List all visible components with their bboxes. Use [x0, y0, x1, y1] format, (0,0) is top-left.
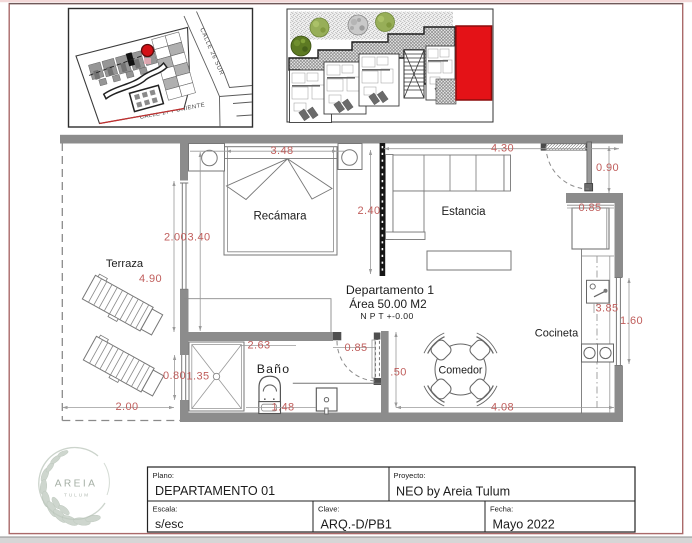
svg-text:Área 50.00 M2: Área 50.00 M2: [349, 297, 426, 311]
svg-text:2.63: 2.63: [247, 340, 270, 352]
svg-text:TULUM: TULUM: [64, 493, 90, 499]
svg-text:Proyecto:: Proyecto:: [394, 471, 426, 480]
svg-text:3.48: 3.48: [270, 145, 293, 157]
svg-text:Cocineta: Cocineta: [535, 328, 579, 340]
svg-text:DEPARTAMENTO 01: DEPARTAMENTO 01: [155, 484, 275, 498]
svg-text:3.40: 3.40: [187, 232, 210, 244]
svg-text:s/esc: s/esc: [155, 517, 183, 531]
svg-text:4.30: 4.30: [491, 143, 514, 155]
svg-text:Plano:: Plano:: [153, 471, 175, 480]
svg-text:.50: .50: [390, 366, 407, 378]
svg-text:4.90: 4.90: [139, 273, 162, 285]
svg-text:1.60: 1.60: [620, 315, 643, 327]
svg-text:Terraza: Terraza: [106, 258, 144, 270]
svg-text:Clave:: Clave:: [318, 504, 340, 513]
svg-text:0.90: 0.90: [596, 162, 619, 174]
svg-text:Departamento 1: Departamento 1: [346, 283, 434, 297]
svg-text:2.00: 2.00: [164, 232, 187, 244]
svg-text:Mayo 2022: Mayo 2022: [493, 517, 555, 531]
svg-text:Recámara: Recámara: [253, 211, 307, 223]
svg-text:3.85: 3.85: [595, 303, 618, 315]
svg-text:N P T +-0.00: N P T +-0.00: [360, 311, 413, 321]
svg-text:ARQ.-D/PB1: ARQ.-D/PB1: [321, 517, 392, 531]
svg-text:AREIA: AREIA: [55, 479, 98, 490]
svg-text:4.08: 4.08: [491, 401, 514, 413]
svg-text:NEO by Areia Tulum: NEO by Areia Tulum: [396, 484, 510, 498]
svg-text:Escala:: Escala:: [153, 504, 178, 513]
svg-text:0.85: 0.85: [344, 342, 367, 354]
svg-text:Fecha:: Fecha:: [490, 504, 513, 513]
svg-text:2.40: 2.40: [357, 205, 380, 217]
svg-text:Baño: Baño: [257, 362, 291, 376]
svg-text:Comedor: Comedor: [439, 364, 483, 376]
svg-text:1.35: 1.35: [186, 370, 209, 382]
svg-text:0.80: 0.80: [163, 370, 186, 382]
svg-text:2.00: 2.00: [115, 401, 138, 413]
svg-text:1.48: 1.48: [271, 401, 294, 413]
svg-text:Estancia: Estancia: [441, 206, 486, 218]
svg-text:0.85: 0.85: [578, 202, 601, 214]
